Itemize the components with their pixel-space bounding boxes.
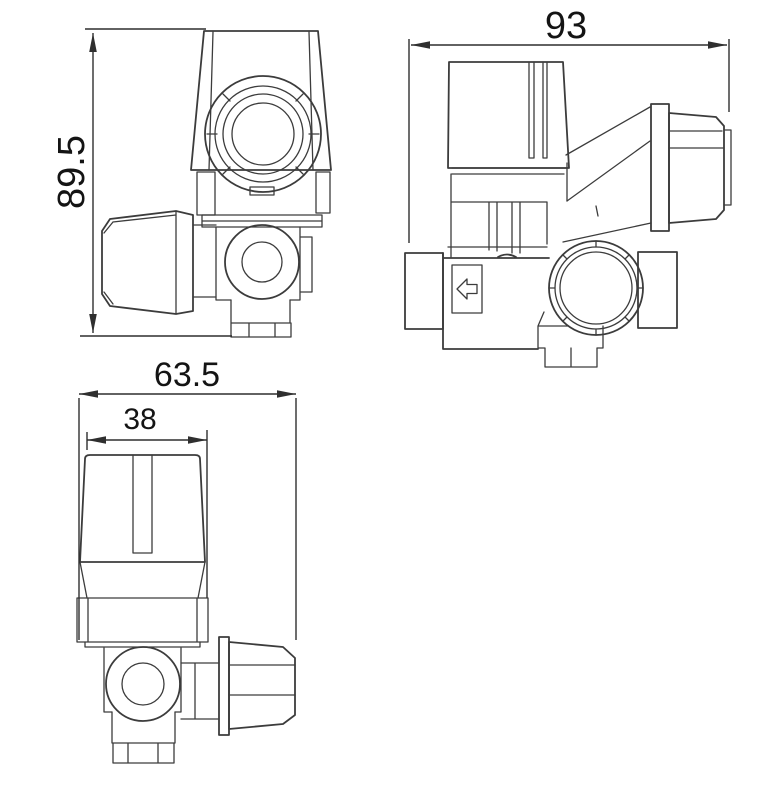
left-fitting-connector: [193, 225, 216, 297]
right-hex-fitting: [229, 642, 295, 729]
upper-hex-fitting: [669, 113, 724, 223]
knob-neck: [80, 562, 205, 598]
inlet-port-left: [405, 253, 443, 329]
right-flange-plate: [219, 637, 229, 735]
knob-cap-rings: [205, 76, 321, 195]
main-pipe-body: [443, 253, 549, 349]
label-overall-length: 93: [545, 5, 587, 47]
technical-drawing-canvas: 89.5 93 63.5 38: [0, 0, 773, 800]
flow-direction-arrow-icon: [457, 279, 477, 299]
body-side-tabs: [197, 172, 330, 215]
ring-nut-notches: [549, 241, 643, 335]
label-overall-width: 63.5: [154, 356, 220, 394]
knob-slot-groove: [529, 63, 547, 158]
arm-flange-plate: [651, 104, 669, 231]
right-fitting-connector: [181, 663, 219, 719]
front-port-ring: [225, 225, 299, 299]
valve-three-view-drawing: 89.5 93 63.5 38: [0, 0, 773, 800]
upper-hex-fitting-bands: [669, 130, 731, 205]
label-knob-width: 38: [123, 403, 156, 436]
side-port-ring-nut: [549, 241, 643, 335]
view-front: [77, 455, 295, 763]
dim-width-extension-lines: [79, 398, 296, 640]
label-overall-height: 89.5: [51, 135, 93, 209]
view-top: [102, 31, 331, 337]
front-port-ring: [106, 647, 180, 721]
dimension-annotations: [79, 29, 729, 640]
knob-outline: [80, 455, 205, 562]
angled-arm: [563, 107, 651, 242]
ribbed-body-section: [448, 174, 547, 257]
knob-cap-ring-inner: [232, 103, 294, 165]
left-hex-fitting-facets: [104, 211, 176, 314]
valve-body-block: [216, 227, 312, 300]
flow-direction-label: [452, 265, 482, 313]
front-port-bore: [242, 242, 282, 282]
collar-band: [77, 598, 208, 642]
right-hex-fitting-facets: [229, 665, 295, 695]
dim-overall-width: [79, 394, 296, 640]
valve-body-block: [85, 642, 200, 712]
view-side: [405, 62, 731, 367]
dim-overall-length: [409, 39, 729, 243]
knob-slot-groove: [133, 455, 152, 553]
knob-cap-ring-3: [223, 94, 303, 174]
left-hex-fitting: [102, 211, 193, 314]
bottom-outlet: [231, 300, 291, 337]
ring-nut-bore: [560, 252, 632, 324]
bottom-outlet: [112, 712, 175, 763]
front-port-bore: [122, 663, 164, 705]
dim-length-extension-lines: [409, 39, 729, 243]
knob-outline: [448, 62, 569, 168]
